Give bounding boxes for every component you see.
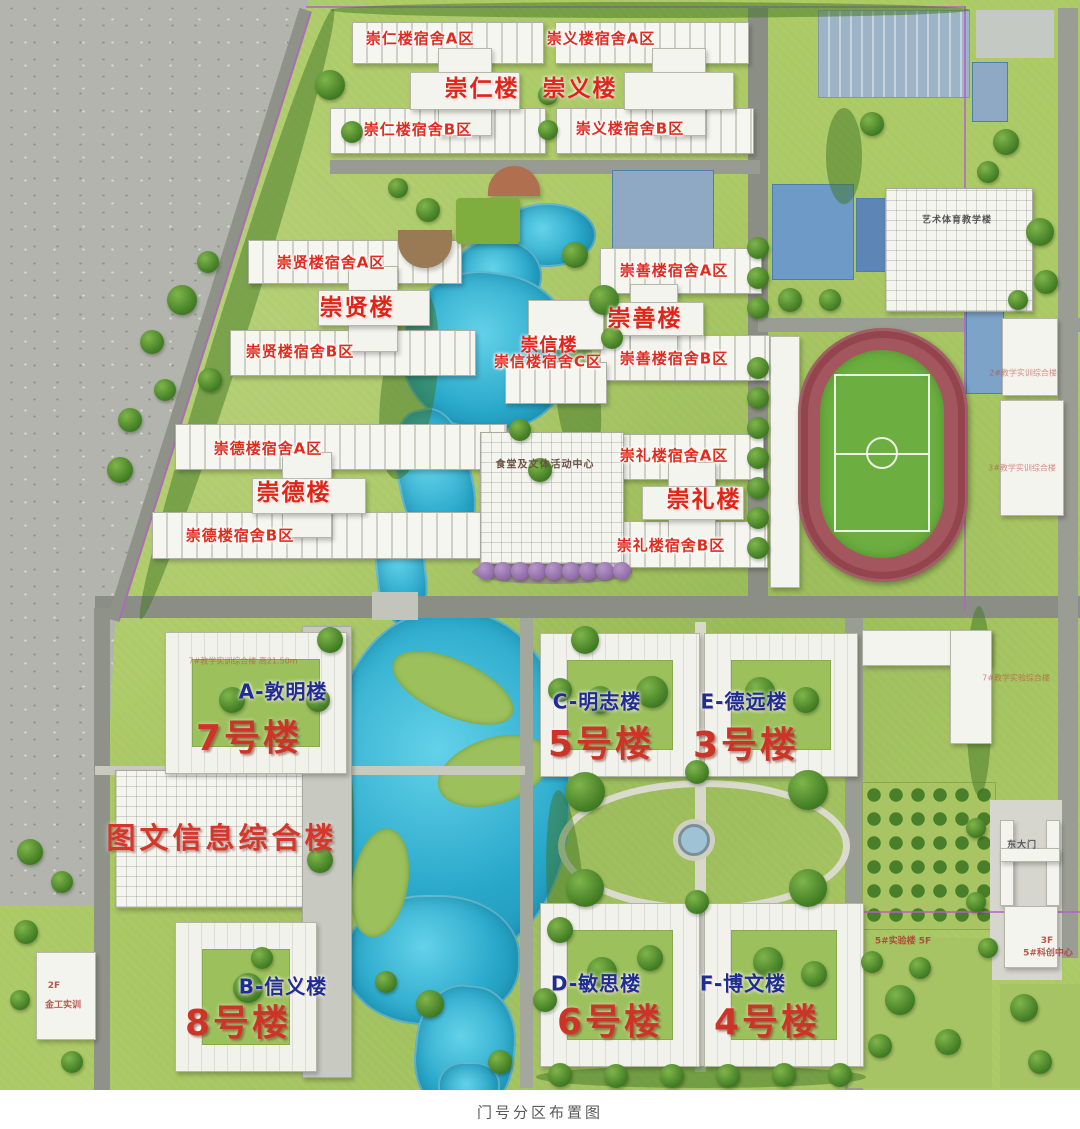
tree [788, 770, 828, 810]
tree [966, 818, 986, 838]
label-chongli-dorm-a: 崇礼楼宿舍A区 [620, 445, 729, 466]
road [95, 596, 1080, 618]
label-chongli-hall: 崇礼楼 [667, 480, 742, 514]
building [950, 630, 992, 744]
label-art-sports: 艺术体育教学楼 [922, 213, 992, 226]
building [624, 72, 734, 110]
tree [509, 419, 531, 441]
label-chongyi-dorm-a: 崇义楼宿舍A区 [547, 28, 656, 49]
tree [978, 938, 998, 958]
tree [977, 161, 999, 183]
tree [966, 892, 986, 912]
map-caption: 门号分区布置图 [477, 1102, 603, 1123]
label-no7-annex: 7#教学实训综合楼 高21.50m [188, 656, 297, 667]
tree [10, 990, 30, 1010]
label-chongren-dorm-a: 崇仁楼宿舍A区 [366, 28, 475, 49]
pitch-lines [834, 374, 930, 532]
tree [317, 627, 343, 653]
tree [571, 626, 599, 654]
tree [747, 537, 769, 559]
label-chongxin-hall: 崇信楼 [521, 331, 578, 357]
tree [747, 417, 769, 439]
tree [935, 1029, 961, 1055]
tree [545, 562, 563, 580]
tree [17, 839, 43, 865]
label-no6: 6号楼 [557, 993, 663, 1045]
building [480, 432, 624, 564]
label-bldg-a: A-敦明楼 [239, 676, 328, 705]
tree [154, 379, 176, 401]
label-chongshan-hall: 崇善楼 [608, 299, 683, 333]
label-chongde-hall: 崇德楼 [257, 473, 332, 507]
label-no8: 8号楼 [185, 994, 291, 1046]
tree [747, 387, 769, 409]
label-metal-name: 金工实训 [45, 998, 81, 1011]
label-east-gate: 东大门 [1007, 838, 1037, 851]
tree [793, 687, 819, 713]
caption-strip: 门号分区布置图 [0, 1090, 1080, 1129]
label-bldg-c: C-明志楼 [553, 686, 641, 715]
tree [375, 971, 397, 993]
label-no7: 7号楼 [196, 709, 302, 761]
tree [562, 242, 588, 268]
tree-band [330, 2, 970, 18]
label-chongde-dorm-a: 崇德楼宿舍A区 [214, 438, 323, 459]
building [770, 336, 800, 588]
tree [118, 408, 142, 432]
tree [1026, 218, 1054, 246]
tree [579, 562, 597, 580]
athletics-track [798, 328, 968, 582]
tree [198, 368, 222, 392]
tree [197, 251, 219, 273]
tree [511, 562, 529, 580]
tree [51, 871, 73, 893]
tree [566, 869, 604, 907]
tree [789, 869, 827, 907]
sports-court [972, 62, 1008, 122]
label-chongshan-dorm-b: 崇善楼宿舍B区 [620, 348, 728, 369]
tree [861, 951, 883, 973]
label-chongren-dorm-b: 崇仁楼宿舍B区 [364, 119, 472, 140]
tree [860, 112, 884, 136]
tree [772, 1063, 796, 1087]
building [36, 952, 96, 1040]
label-chongli-dorm-b: 崇礼楼宿舍B区 [617, 535, 725, 556]
tree-band [536, 1066, 866, 1088]
label-no3: 3号楼 [693, 716, 799, 768]
tree [801, 961, 827, 987]
label-chongren-hall: 崇仁楼 [445, 69, 520, 103]
tree [388, 178, 408, 198]
building [1046, 820, 1060, 906]
label-lab5: 5#实验楼 5F [875, 934, 931, 947]
tree [868, 1034, 892, 1058]
tree [547, 917, 573, 943]
label-sci-floor: 3F [1041, 936, 1053, 946]
tree [341, 121, 363, 143]
tree [477, 562, 495, 580]
building [1000, 400, 1064, 516]
tree [565, 772, 605, 812]
label-annex-right-1: 2#教学实训综合楼 [989, 368, 1057, 379]
tree [61, 1051, 83, 1073]
tree [140, 330, 164, 354]
tree [1028, 1050, 1052, 1074]
label-no4: 4号楼 [714, 993, 820, 1045]
tree [416, 198, 440, 222]
label-chongyi-hall: 崇义楼 [543, 69, 618, 103]
tree [488, 1050, 512, 1074]
sports-court [966, 300, 1004, 394]
tree [885, 985, 915, 1015]
tree [828, 1063, 852, 1087]
tree [778, 288, 802, 312]
campus-map: 崇仁楼宿舍A区崇义楼宿舍A区崇仁楼宿舍B区崇义楼宿舍B区崇贤楼宿舍A区崇贤楼宿舍… [0, 0, 1080, 1129]
tree [562, 562, 580, 580]
tree [548, 1063, 572, 1087]
building [456, 198, 520, 244]
label-canteen: 食堂及文体活动中心 [496, 456, 595, 471]
soccer-field [820, 350, 944, 558]
tree [251, 947, 273, 969]
tree [416, 990, 444, 1018]
tree [716, 1064, 740, 1088]
tree [747, 447, 769, 469]
tree-band [826, 108, 862, 204]
building [1002, 318, 1058, 396]
paved-area [372, 592, 418, 620]
label-chongyi-dorm-b: 崇义楼宿舍B区 [576, 118, 684, 139]
tree [613, 562, 631, 580]
building [1000, 820, 1014, 906]
tree [660, 1064, 684, 1088]
tree [747, 297, 769, 319]
paved-area [976, 10, 1054, 58]
tree [604, 1064, 628, 1088]
tree [1034, 270, 1058, 294]
label-annex-right-2: 3#教学实训综合楼 [988, 463, 1056, 474]
plaza-fountain [678, 824, 710, 856]
tree [528, 562, 546, 580]
tree [167, 285, 197, 315]
pitch-center-circle [866, 437, 898, 469]
label-chongxian-dorm-b: 崇贤楼宿舍B区 [246, 341, 354, 362]
tree [747, 477, 769, 499]
label-chongde-dorm-b: 崇德楼宿舍B区 [186, 525, 294, 546]
tree [14, 920, 38, 944]
label-right-annex: 7#教学实验综合楼 [982, 673, 1050, 684]
sports-court [612, 170, 714, 256]
label-chongxian-dorm-a: 崇贤楼宿舍A区 [277, 252, 386, 273]
tree [993, 129, 1019, 155]
tree [596, 562, 614, 580]
tree [538, 120, 558, 140]
tree [107, 457, 133, 483]
tree [747, 507, 769, 529]
tree [685, 890, 709, 914]
tree [1010, 994, 1038, 1022]
label-sci-center: 5#科创中心 [1023, 946, 1073, 959]
tree [747, 237, 769, 259]
tree [315, 70, 345, 100]
label-bldg-e: E-德远楼 [701, 686, 788, 715]
label-chongshan-dorm-a: 崇善楼宿舍A区 [620, 260, 729, 281]
tree [747, 267, 769, 289]
tree [909, 957, 931, 979]
tree [747, 357, 769, 379]
parking-lot [818, 10, 970, 98]
tree [494, 562, 512, 580]
label-chongxian-hall: 崇贤楼 [320, 288, 395, 322]
tree [1008, 290, 1028, 310]
label-no5: 5号楼 [548, 715, 654, 767]
label-library: 图文信息综合楼 [106, 815, 337, 857]
road [520, 618, 533, 1088]
label-metal-floor: 2F [48, 981, 60, 991]
tree [819, 289, 841, 311]
